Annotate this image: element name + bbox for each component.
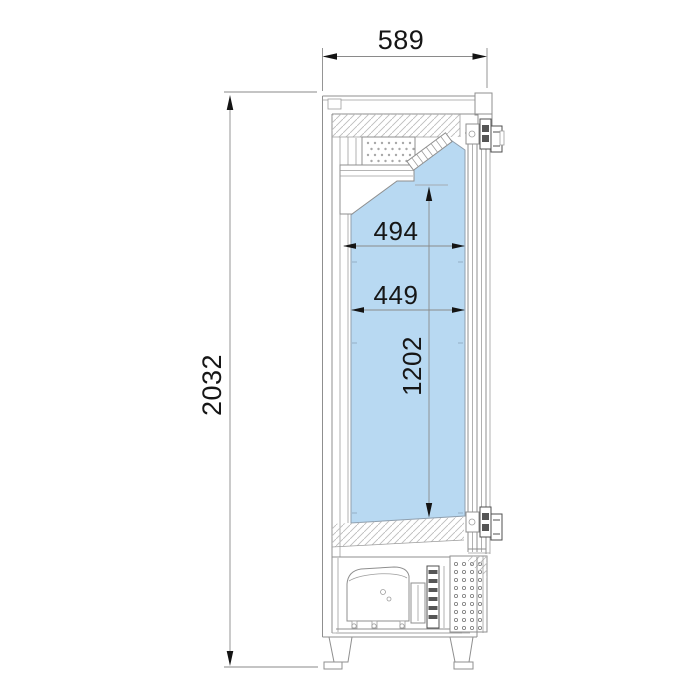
arrowhead-up-icon xyxy=(227,95,234,110)
foot-right xyxy=(454,662,473,669)
leg-right xyxy=(450,637,473,662)
arrowhead-right-icon xyxy=(473,53,488,60)
dimension-overall-height: 2032 xyxy=(197,92,318,667)
interior-height-label: 1202 xyxy=(397,336,427,396)
condenser-bracket xyxy=(427,566,439,628)
interior-mid-depth-label: 449 xyxy=(374,280,419,310)
arrowhead-left-icon xyxy=(323,53,338,60)
arrowhead-down-icon xyxy=(227,651,234,666)
insulation-top xyxy=(332,114,460,137)
leg-left xyxy=(329,637,352,662)
cap-step-notch xyxy=(328,99,341,109)
diagram-canvas: 589 2032 xyxy=(0,0,700,700)
interior-top-depth-label: 494 xyxy=(374,216,419,246)
technical-drawing: 589 2032 xyxy=(0,0,700,700)
legs xyxy=(324,637,473,669)
dimension-overall-depth: 589 xyxy=(323,25,488,91)
foot-left xyxy=(324,662,342,669)
cap-right-block xyxy=(475,93,492,115)
overall-depth-label: 589 xyxy=(378,25,425,55)
overall-height-label: 2032 xyxy=(197,354,227,416)
